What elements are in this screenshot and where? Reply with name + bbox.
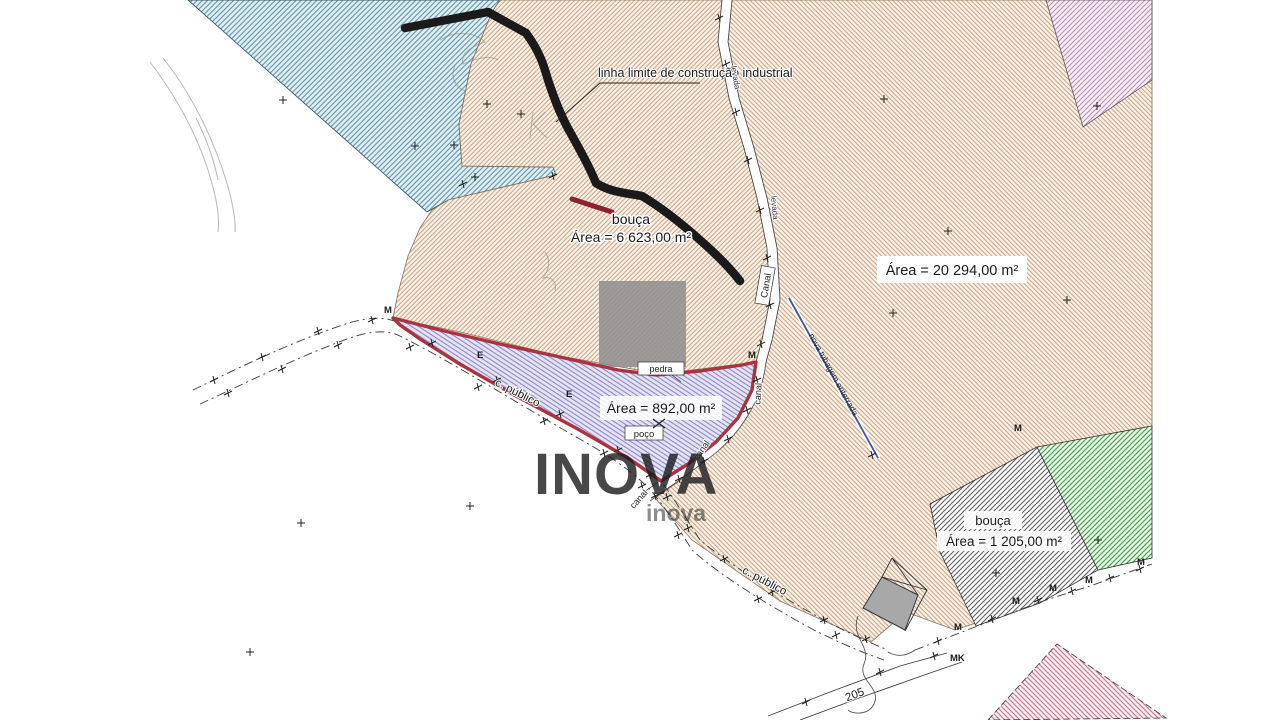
marker-m-red: M xyxy=(748,350,756,361)
cadastral-plan-page: linha limite de construção industrial bo… xyxy=(0,0,1280,720)
marker-m: M xyxy=(384,305,392,316)
label-area-subject: Área = 892,00 m² xyxy=(600,396,722,420)
marker-m: M xyxy=(1049,583,1057,594)
poco-text: poço xyxy=(634,429,655,440)
label-limit-line: linha limite de construção industrial xyxy=(598,66,793,80)
watermark-text: INOVA xyxy=(534,442,718,507)
label-area-large: Área = 20 294,00 m² xyxy=(877,256,1027,283)
watermark-subtext: inova xyxy=(646,500,706,526)
marker-m: M xyxy=(1012,596,1020,607)
marker-m: M xyxy=(954,622,962,633)
marker-m: M xyxy=(1014,423,1022,434)
canal-text: canal xyxy=(752,383,763,405)
area-bouca-right-text: Área = 1 205,00 m² xyxy=(946,534,1062,549)
marker-e: E xyxy=(477,350,483,361)
marker-m: M xyxy=(1085,575,1093,586)
label-area-bouca-top: Área = 6 623,00 m² xyxy=(571,229,692,245)
label-bouca-top: bouça xyxy=(612,211,650,227)
label-canal-1: canal xyxy=(752,383,763,405)
area-large-text: Área = 20 294,00 m² xyxy=(886,262,1019,279)
marker-mk: MK xyxy=(950,653,965,664)
pedra-text: pedra xyxy=(649,364,672,374)
watermark-square xyxy=(599,281,686,367)
marker-m: M xyxy=(1137,557,1145,568)
marker-e: E xyxy=(566,389,572,400)
bouca-right-text: bouça xyxy=(975,513,1011,528)
cadastral-map: linha limite de construção industrial bo… xyxy=(0,0,1280,720)
area-subject-text: Área = 892,00 m² xyxy=(607,400,716,416)
